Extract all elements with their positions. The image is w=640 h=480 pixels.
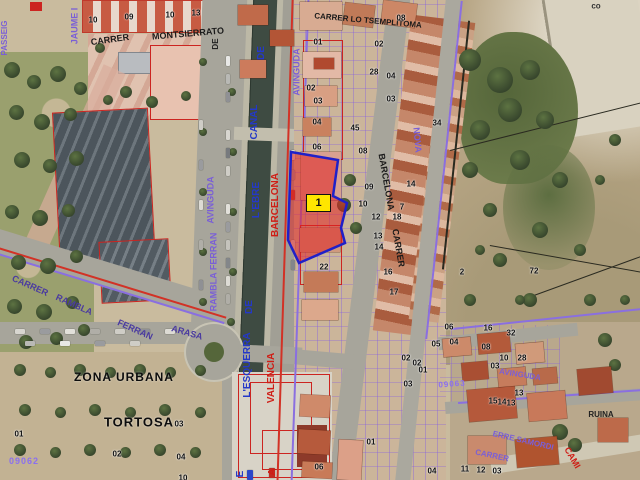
parcel-number: 18 [393,213,402,222]
parcel-number: 28 [518,354,527,363]
parcel-number: 10 [179,474,188,480]
street-label-arasa-sw: ARASA [170,324,203,341]
parcel-number: 08 [397,14,406,23]
parcel-number: 03 [404,380,413,389]
parcel-number: 7 [400,203,404,212]
municipality-label: TORTOSA [104,415,174,430]
parcel-number: 01 [15,430,24,439]
street-label-barcelona-red: BARCELONA [271,173,281,237]
street-label-avinguda-se: AVINGUDA [499,368,542,382]
parcel-number: 11 [461,465,469,474]
parcel-number: 15 [489,397,498,406]
parcel-number: 04 [177,453,186,462]
parcel-number: 03 [387,95,396,104]
street-label-passeig: PASSEIG [1,21,9,56]
street-label-barcelona-street: BARCELONA [377,153,396,211]
street-label-avinguda-west: AVINGUDA [207,176,216,223]
parcel-number: 02 [307,84,316,93]
zone-id-left: 09062 [9,456,39,466]
parcel-number: 04 [387,72,396,81]
parcel-number: 03 [314,97,323,106]
parcel-number: 13 [515,389,524,398]
street-label-ruina: RUINA [588,411,613,419]
parcel-number: 12 [372,213,381,222]
parcel-number: 04 [313,118,322,127]
street-label-canal: CANAL [250,105,260,140]
zone-id-right: 09063 [438,379,466,390]
parcel-number: 45 [351,124,360,133]
parcel-number: 2 [460,268,464,277]
parcel-number: 16 [484,324,493,333]
parcel-number: 06 [313,143,322,152]
parcel-number: 03 [491,362,500,371]
parcel-number: 08 [482,343,491,352]
parcel-number: 09 [125,13,134,22]
street-label-nova: NOVA [411,127,422,153]
street-label-carrer-lo: CARRER LO TSEMPLITOMA [314,12,422,29]
parcel-number: 22 [320,263,329,272]
parcel-number: 17 [390,288,399,297]
parcel-number: 13 [192,9,201,18]
street-label-canal-e-frag: E [236,471,246,478]
parcel-number: 10 [500,354,509,363]
parcel-number: 10 [89,16,98,25]
parcel-number: 13 [374,232,383,241]
corner-label: co [591,2,600,11]
parcel-number: 13 [507,399,516,408]
street-label-canal-de-2: DE [245,300,255,314]
parcel-number: 34 [433,119,442,128]
parcel-number: 01 [419,366,428,375]
street-label-rambla-sw: RAMBLA [54,293,93,317]
parcel-number: 04 [428,467,437,476]
parcel-number: 02 [375,40,384,49]
street-label-ferran-sw: FERRAN [116,318,154,341]
street-label-cami: CAMI [562,446,581,470]
parcel-number: 10 [359,200,368,209]
street-label-canal-de-1: DE [257,46,267,60]
parcel-number: 16 [384,268,393,277]
street-label-valencia-red: VALENCIA [267,353,277,403]
map-viewport[interactable]: 1 CARRERMONTSIERRATOCARRER LO TSEMPLITOM… [0,0,640,480]
parcel-number: 06 [315,463,324,472]
parcel-number: 14 [498,398,507,407]
street-label-carrer-topleft: CARRER [90,33,129,47]
street-label-canal-lebre: L'EBRE [252,182,262,218]
zona-urbana-label: ZONA URBANA [74,370,174,384]
street-label-a-red-frag: A [268,468,278,475]
parcel-number: 14 [407,180,416,189]
parcel-number: 12 [477,466,486,475]
parcel-number: 01 [314,38,323,47]
parcel-number: 32 [507,329,516,338]
parcel-number: 02 [113,450,122,459]
parcel-number: 08 [359,147,368,156]
street-label-de-black: DE [212,38,220,49]
street-label-carrer-se: CARRER [474,449,509,464]
parcel-number: 05 [432,340,441,349]
parcel-number: 10 [166,11,175,20]
street-label-erre-samordi: ERRE SAMORDI [492,430,554,452]
map-labels: CARRERMONTSIERRATOCARRER LO TSEMPLITOMAJ… [0,0,640,480]
street-label-carrer-street: CARRER [390,228,406,267]
parcel-number: 01 [367,438,376,447]
parcel-number: 03 [175,420,184,429]
parcel-number: 02 [402,354,411,363]
parcel-number: 06 [445,323,454,332]
street-label-rambla-ferran-vert: RAMBLA FERRAN [210,233,219,312]
parcel-number: 04 [450,338,459,347]
parcel-number: 28 [370,68,379,77]
street-label-jaume-i: JAUME I [71,8,80,45]
parcel-number: 09 [365,183,374,192]
parcel-number: 14 [375,243,384,252]
parcel-number: 72 [530,267,539,276]
parcel-number: 03 [493,467,502,476]
street-label-avinguda-east: AVINGUDA [293,48,302,95]
street-label-canal-lesquerra: L'ESQUERRA [243,332,253,397]
street-label-carrer-sw: CARRER [11,274,50,298]
